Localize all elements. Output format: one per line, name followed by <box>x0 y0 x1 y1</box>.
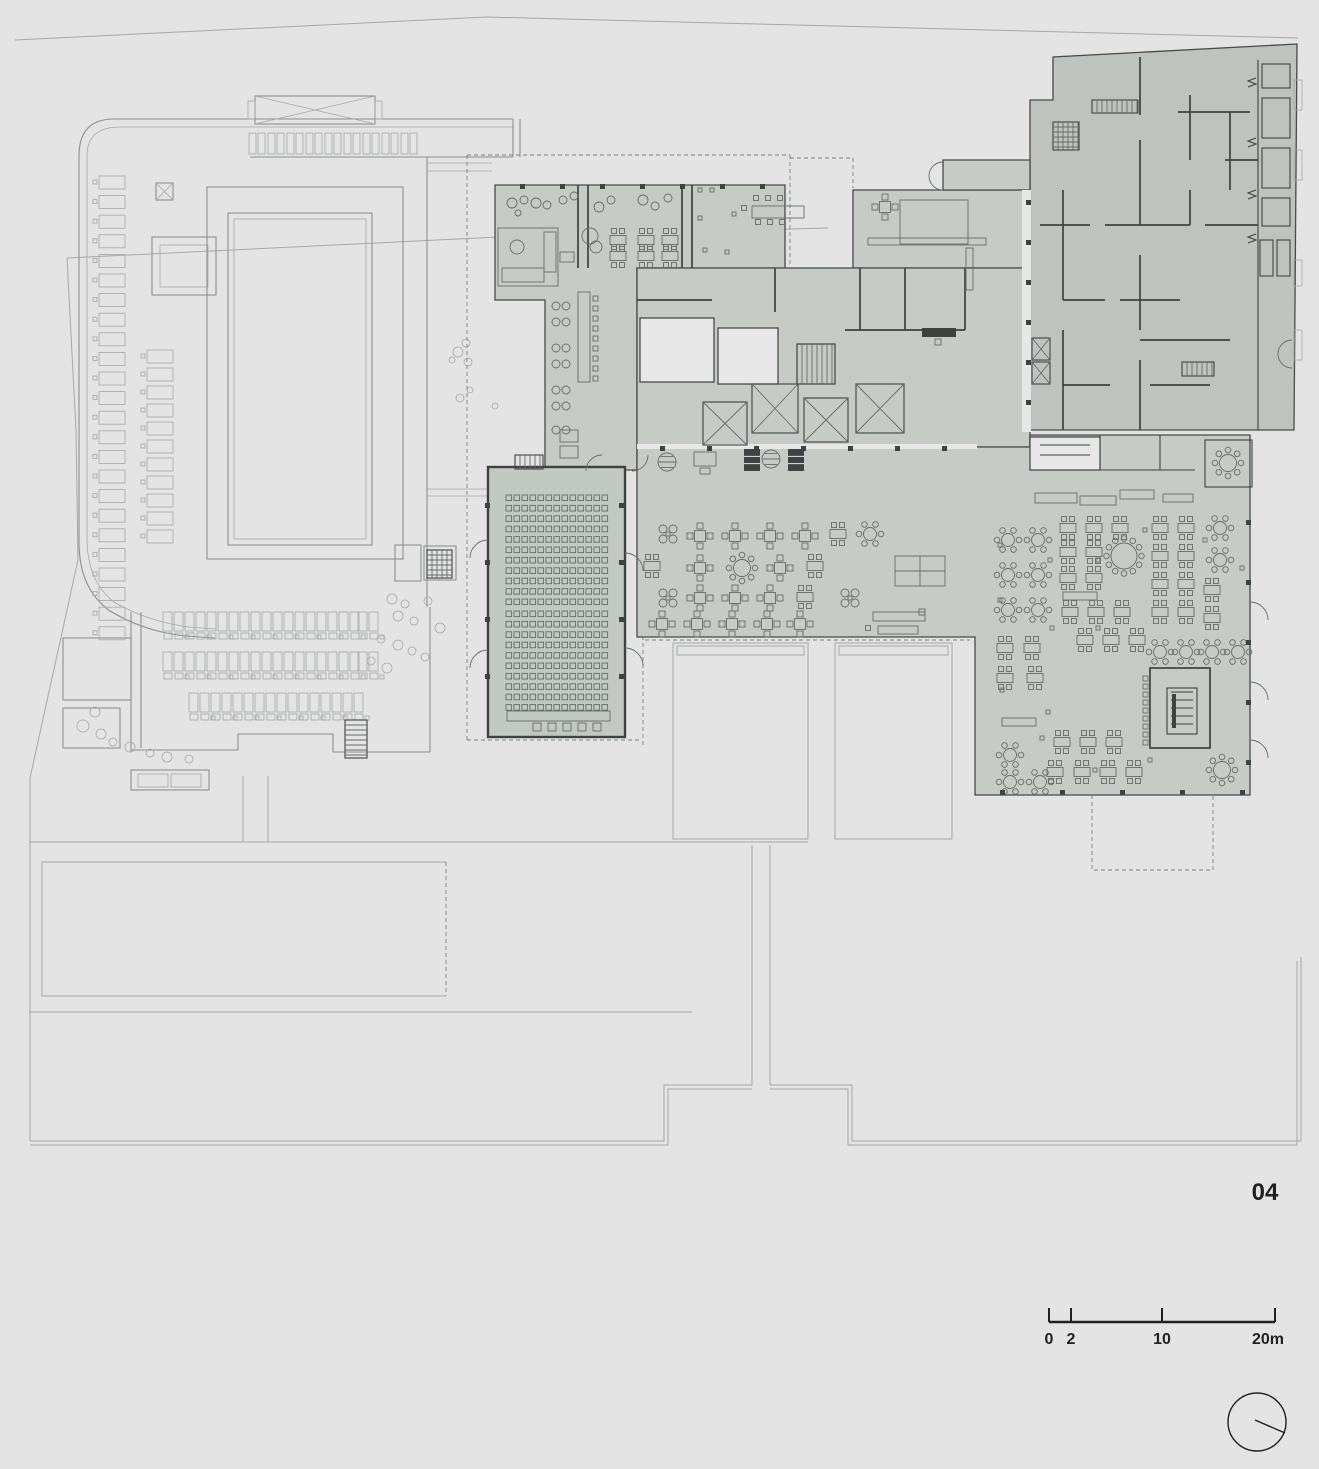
plan-canvas: 0 2 10 20m 04 <box>0 0 1319 1469</box>
scale-label-10: 10 <box>1153 1331 1171 1348</box>
sheet-number: 04 <box>1252 1179 1279 1206</box>
auditorium <box>488 467 625 737</box>
scale-label-20m: 20m <box>1252 1331 1284 1348</box>
scale-label-2: 2 <box>1067 1331 1076 1348</box>
compass-needle <box>1255 1420 1285 1433</box>
context-building <box>63 96 520 790</box>
scale-bar: 0 2 10 20m <box>1045 1308 1284 1348</box>
entry-vestibule <box>943 160 1030 190</box>
scale-label-0: 0 <box>1045 1331 1054 1348</box>
north-east-wing <box>1030 44 1297 430</box>
north-arrow-compass <box>1228 1393 1286 1451</box>
floor-plan-sheet: 0 2 10 20m 04 <box>0 0 1319 1469</box>
main-building <box>488 44 1302 795</box>
